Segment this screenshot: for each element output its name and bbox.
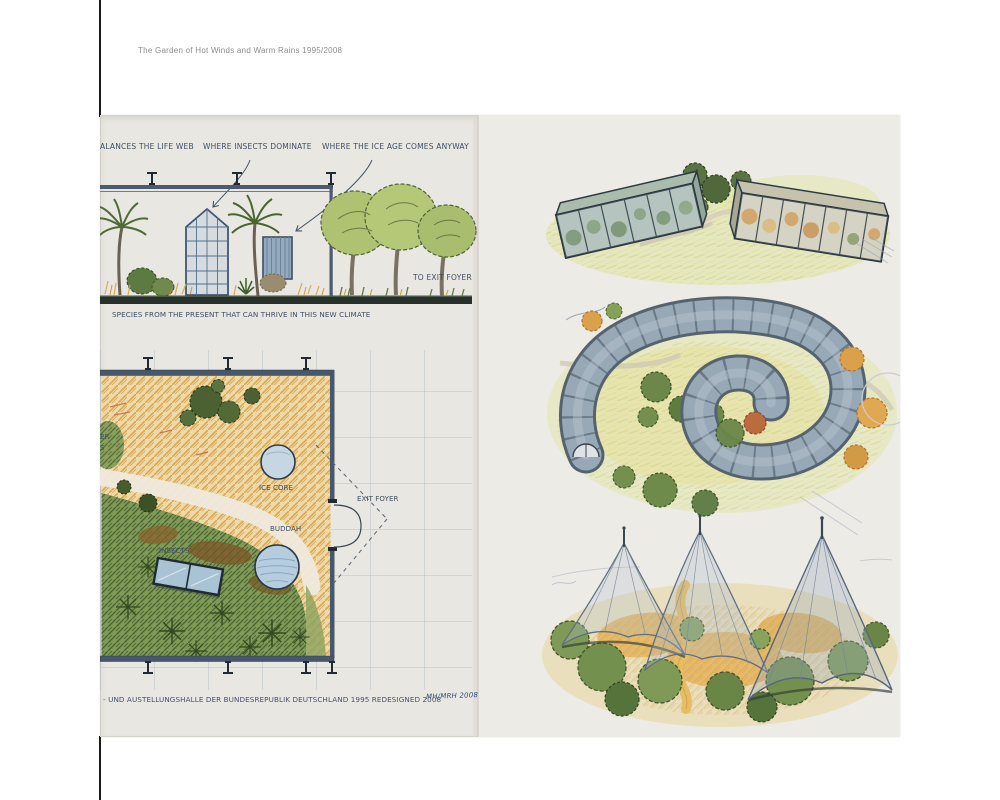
section-drawing	[100, 160, 476, 304]
plate-footer-caption: - UND AUSTELLUNGSHALLE DER BUNDESREPUBLI…	[103, 695, 441, 704]
label-edge-fragment-top: ER	[100, 433, 110, 441]
label-species-note: SPECIES FROM THE PRESENT THAT CAN THRIVE…	[112, 310, 370, 319]
annotation-life-web: ALANCES THE LIFE WEB	[100, 142, 194, 151]
label-buddah: BUDDAH	[270, 525, 301, 533]
annotation-ice-age: WHERE THE ICE AGE COMES ANYWAY	[322, 142, 469, 151]
label-exit-foyer: EXIT FOYER	[357, 495, 399, 503]
ice-core-circle	[261, 445, 295, 479]
book-page: The Garden of Hot Winds and Warm Rains 1…	[0, 0, 1000, 800]
label-to-exit-foyer: TO EXIT FOYER	[413, 273, 472, 282]
label-ice-core: ICE CORE	[259, 484, 293, 492]
annotation-insects: WHERE INSECTS DOMINATE	[203, 142, 312, 151]
artwork-plate: ALANCES THE LIFE WEB WHERE INSECTS DOMIN…	[100, 115, 900, 737]
plan-drawing	[100, 350, 472, 690]
label-edge-fragment-bottom: S	[100, 444, 105, 452]
artwork-title-caption: The Garden of Hot Winds and Warm Rains 1…	[138, 46, 342, 55]
perspective-sketches	[542, 163, 900, 727]
label-insects: INSECTS	[159, 547, 189, 555]
artwork-drawing	[100, 115, 900, 737]
page-rule-top	[99, 0, 101, 117]
page-rule-bottom	[99, 736, 101, 800]
